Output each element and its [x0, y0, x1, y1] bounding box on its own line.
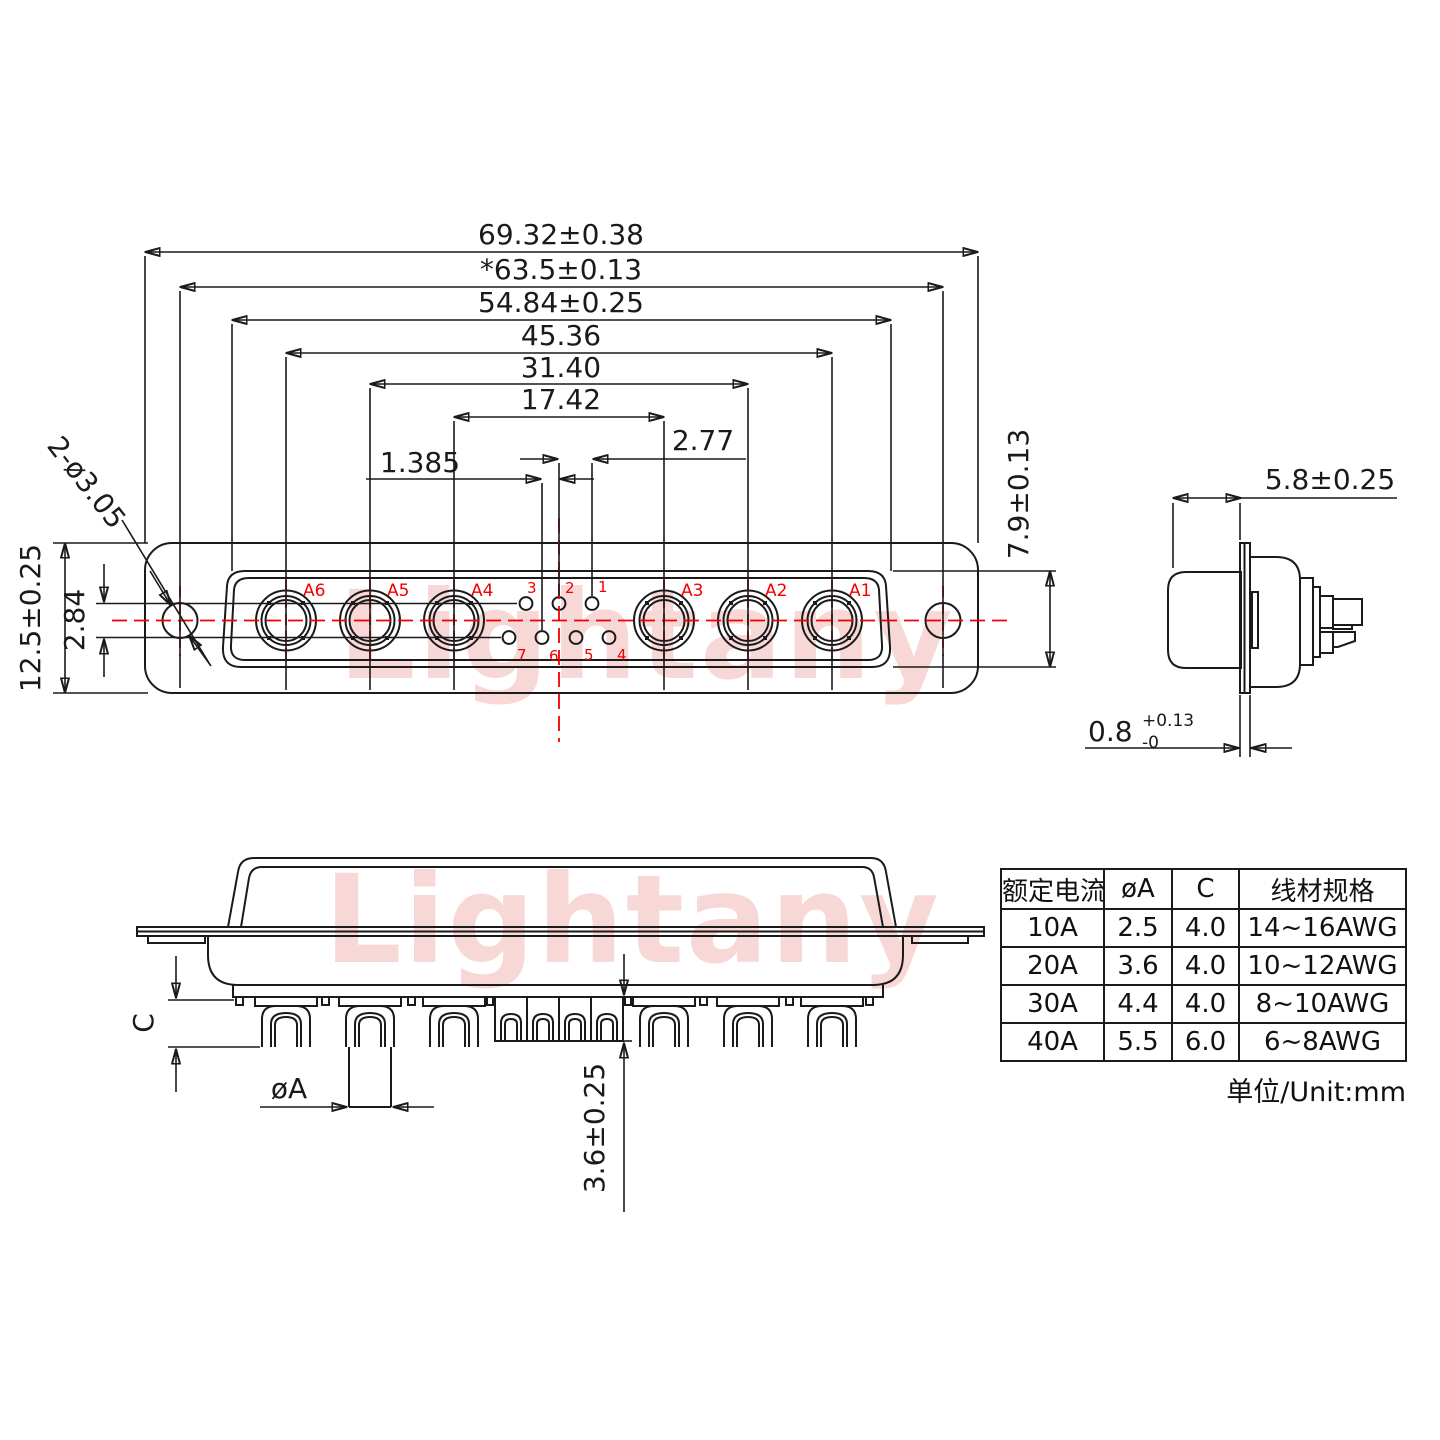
- cell: 6~8AWG: [1239, 1023, 1406, 1061]
- cell: 14~16AWG: [1239, 909, 1406, 947]
- label-A6: A6: [303, 581, 325, 601]
- signal-crimp-block: [495, 997, 623, 1041]
- cell: 6.0: [1172, 1023, 1239, 1061]
- label-A4: A4: [471, 581, 493, 601]
- dim-mating-depth: 5.8±0.25: [1265, 463, 1395, 496]
- cell: 4.0: [1172, 909, 1239, 947]
- barrel-tube: [349, 1047, 391, 1107]
- barrel-A4: [423, 997, 485, 1047]
- spec-table: 额定电流 øA C 线材规格 10A 2.5 4.0 14~16AWG 20A …: [1000, 868, 1407, 1062]
- label-pin7: 7: [517, 646, 527, 664]
- col-header-c: C: [1172, 869, 1239, 909]
- cell: 5.5: [1104, 1023, 1172, 1061]
- engineering-drawing-page: Lightany Lightany: [0, 0, 1440, 1440]
- side-view: 5.8±0.25 7.9±0.13 0.8 +0.13 -0: [893, 429, 1397, 757]
- side-step-2: [1313, 587, 1320, 657]
- table-row: 30A 4.4 4.0 8~10AWG: [1001, 985, 1406, 1023]
- dim-span-c: 17.42: [521, 383, 601, 416]
- cell: 4.0: [1172, 985, 1239, 1023]
- dim-tail-length: 3.6±0.25: [578, 1063, 611, 1193]
- col-header-rated-current: 额定电流: [1001, 869, 1104, 909]
- side-crimp-contacts: [1320, 596, 1362, 653]
- dim-insert-width: 54.84±0.25: [478, 286, 644, 319]
- cell: 8~10AWG: [1239, 985, 1406, 1023]
- cell: 2.5: [1104, 909, 1172, 947]
- flange-tab-left: [148, 936, 205, 943]
- label-A2: A2: [765, 581, 787, 601]
- col-header-dia: øA: [1104, 869, 1172, 909]
- dim-mounting-span: *63.5±0.13: [480, 253, 642, 286]
- dim-pin-pitch: 2.77: [672, 424, 734, 457]
- dim-overall-width: 69.32±0.38: [478, 218, 644, 251]
- barrel-A3: [633, 997, 695, 1047]
- cell: 10A: [1001, 909, 1104, 947]
- cell: 3.6: [1104, 947, 1172, 985]
- cell: 4.4: [1104, 985, 1172, 1023]
- cell: 40A: [1001, 1023, 1104, 1061]
- dim-row-spacing: 2.84: [58, 589, 91, 651]
- dim-span-b: 31.40: [521, 351, 601, 384]
- label-pin4: 4: [617, 646, 627, 664]
- dim-flange-height: 12.5±0.25: [14, 544, 47, 692]
- dim-span-a: 45.36: [521, 319, 601, 352]
- watermark-text: Lightany: [324, 849, 941, 991]
- label-pin2: 2: [565, 579, 575, 597]
- barrel-A5: [339, 997, 401, 1047]
- lip-nubs: [236, 997, 873, 1005]
- label-A5: A5: [387, 581, 409, 601]
- side-step-1: [1300, 578, 1313, 665]
- barrel-A1: [801, 997, 863, 1047]
- table-header-row: 额定电流 øA C 线材规格: [1001, 869, 1406, 909]
- side-front-body: [1168, 572, 1241, 668]
- label-pin6: 6: [549, 647, 559, 665]
- dim-flange-thk-upper: +0.13: [1142, 711, 1194, 731]
- dim-flange-thk-lower: -0: [1142, 733, 1159, 753]
- dim-crimp-depth: C: [127, 1013, 160, 1033]
- dim-insert-height: 7.9±0.13: [1002, 429, 1035, 559]
- label-A1: A1: [849, 581, 871, 601]
- cell: 4.0: [1172, 947, 1239, 985]
- label-A3: A3: [681, 581, 703, 601]
- cell: 30A: [1001, 985, 1104, 1023]
- barrel-A2: [717, 997, 779, 1047]
- table-row: 10A 2.5 4.0 14~16AWG: [1001, 909, 1406, 947]
- label-pin5: 5: [584, 646, 594, 664]
- cell: 20A: [1001, 947, 1104, 985]
- dim-mounting-holes: 2-ø3.05: [40, 430, 132, 535]
- dim-barrel-dia: øA: [271, 1072, 307, 1105]
- dim-pin-half-pitch: 1.385: [380, 446, 460, 479]
- label-pin3: 3: [527, 579, 537, 597]
- side-insulator-edge: [1252, 592, 1258, 648]
- barrel-A6: [255, 997, 317, 1047]
- table-row: 40A 5.5 6.0 6~8AWG: [1001, 1023, 1406, 1061]
- table-row: 20A 3.6 4.0 10~12AWG: [1001, 947, 1406, 985]
- unit-note: 单位/Unit:mm: [1000, 1070, 1406, 1109]
- cell: 10~12AWG: [1239, 947, 1406, 985]
- col-header-wire-gauge: 线材规格: [1239, 869, 1406, 909]
- label-pin1: 1: [598, 578, 608, 596]
- dim-flange-thk: 0.8: [1088, 715, 1133, 748]
- connector-drawing: Lightany Lightany: [0, 0, 1440, 1440]
